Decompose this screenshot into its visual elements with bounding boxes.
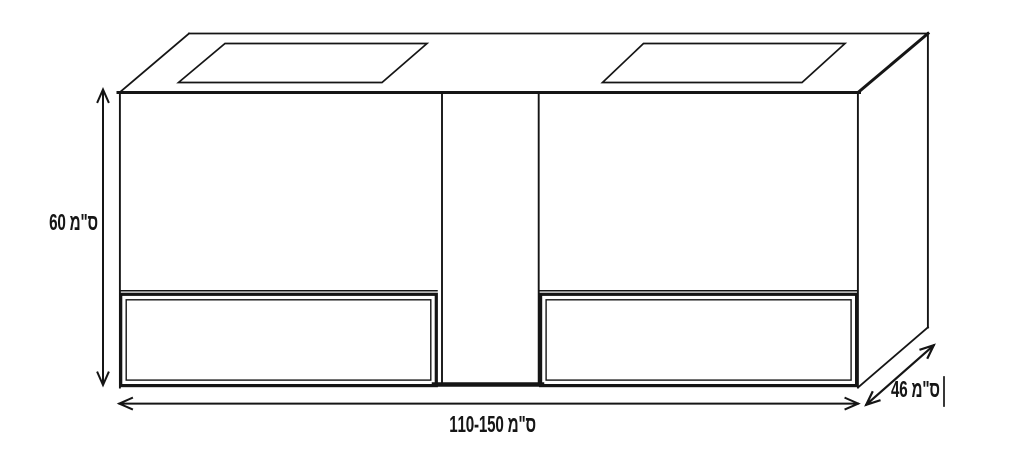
width-dimension-label: ס"מ 110-150: [427, 412, 547, 437]
height-dimension-label: ס"מ 60: [24, 210, 98, 235]
cabinet-line-drawing: [0, 0, 1024, 460]
depth-dimension-value: ס"מ 46: [891, 377, 940, 402]
cabinet-front-face: [120, 92, 858, 388]
sink-cutout-left: [179, 44, 428, 83]
cabinet-top-face: [118, 34, 928, 93]
width-dimension-arrow: [119, 398, 858, 409]
height-dimension-value: ס"מ 60: [49, 210, 98, 235]
depth-dimension-label: ס"מ 46: [891, 377, 965, 402]
drawer-left: [121, 294, 437, 385]
vanity-dimension-diagram: ס"מ 60 ס"מ 110-150 ס"מ 46: [0, 0, 1024, 460]
width-dimension-value: ס"מ 110-150: [449, 412, 536, 437]
top-right-diagonal-edge: [858, 34, 928, 93]
sink-cutout-right: [603, 44, 846, 83]
drawer-right-outer-frame: [541, 294, 857, 385]
drawer-right: [541, 294, 857, 385]
cabinet-side-face: [858, 33, 928, 387]
drawer-right-inner-frame: [546, 300, 851, 380]
drawer-left-inner-frame: [126, 300, 431, 380]
top-left-diagonal-edge: [120, 34, 190, 93]
drawer-left-outer-frame: [121, 294, 437, 385]
height-dimension-arrow: [98, 90, 109, 386]
